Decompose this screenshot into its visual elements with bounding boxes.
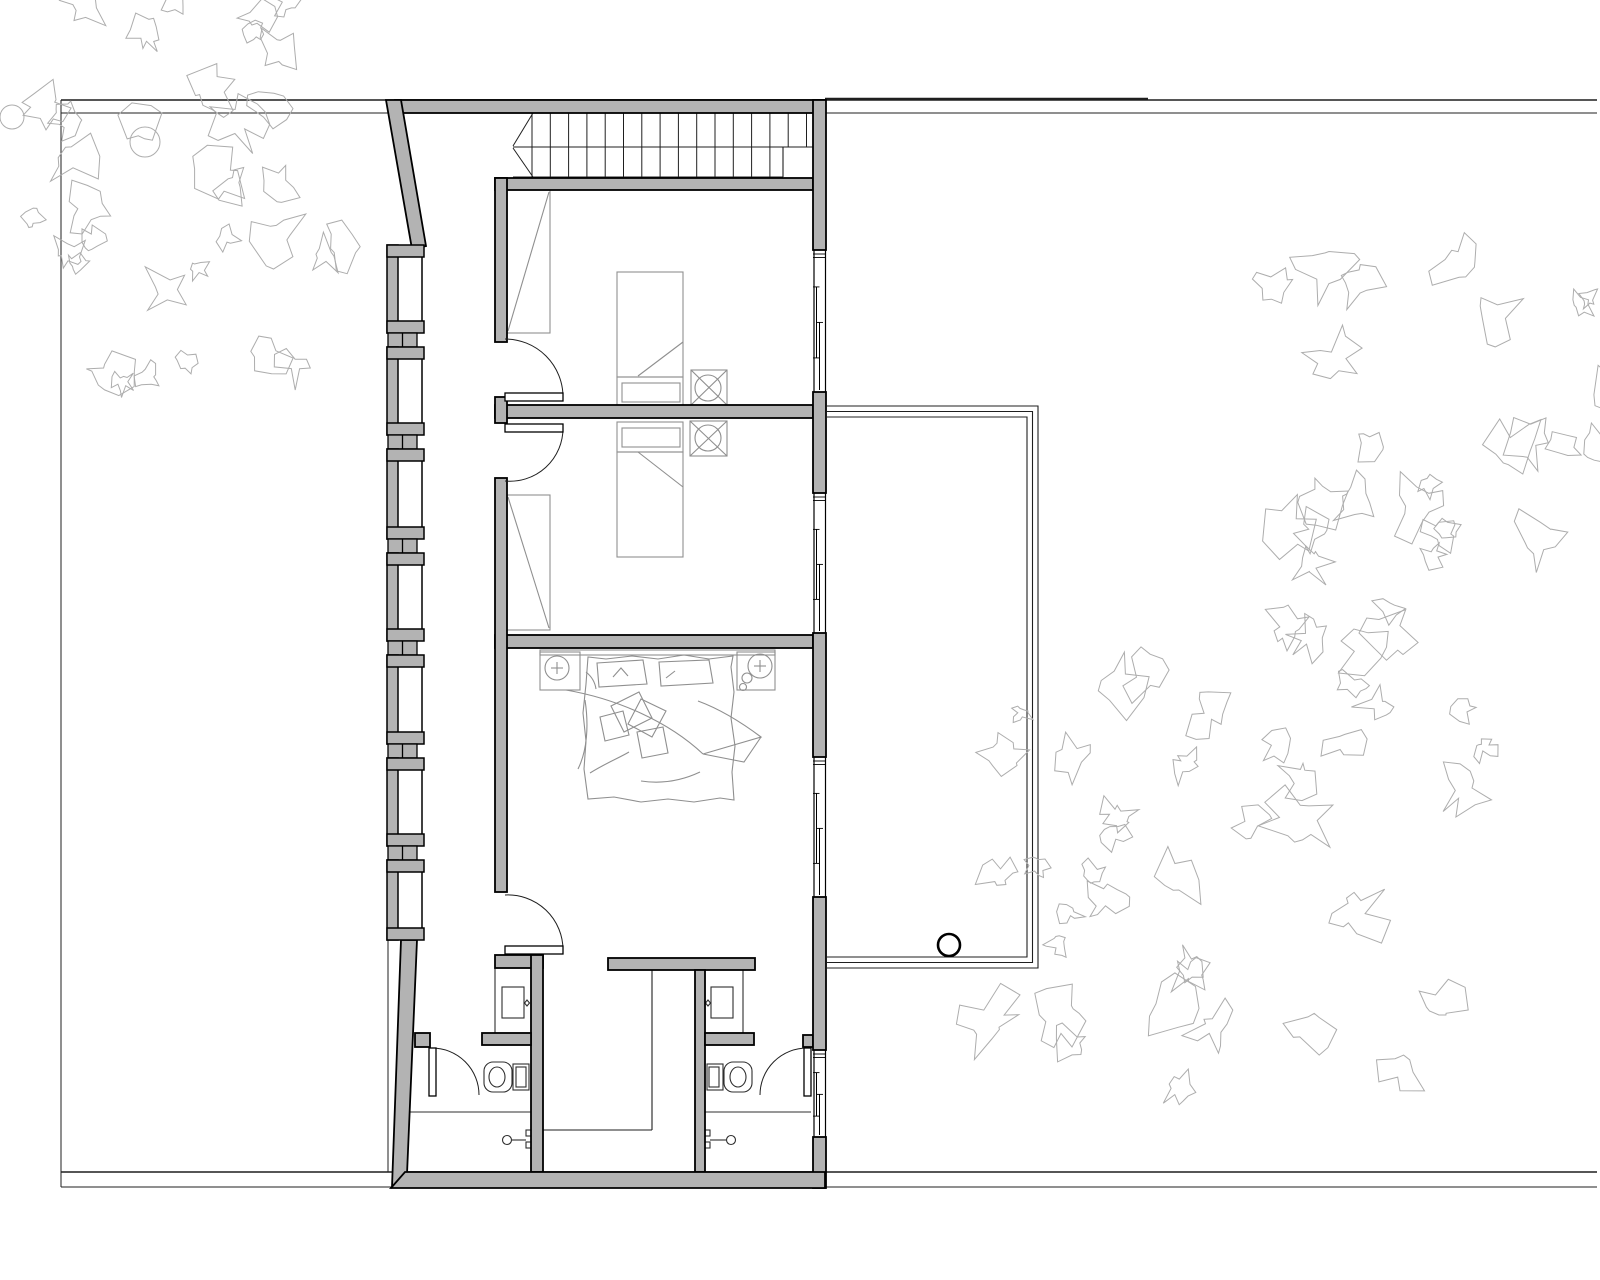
tree-foliage-clump [242,20,263,43]
vanity-left-knob [525,1000,530,1006]
tree-foliage-clump [1338,629,1388,676]
bath-right-left-wall [695,970,705,1172]
tree-foliage-clump [1514,509,1568,573]
master-bed-cushion3 [637,727,668,758]
bed2-blanket-fold [638,452,683,487]
bath-left-right-wall [531,955,543,1172]
pillar-flange-top [387,347,424,359]
tree-foliage-clump [1474,739,1498,764]
master-bed-pillow2-mark [666,671,675,678]
toilet-left-tank [513,1064,529,1090]
master-bed-wrinkle2 [590,752,629,773]
left-facade-pillars [387,245,424,940]
toilet-right-tank-inner [709,1067,719,1087]
tree-foliage-clump [1258,785,1333,847]
divider-bed1-bed2 [495,405,813,418]
tree-foliage-clump [956,983,1020,1059]
pillar-strip [387,347,398,435]
floor-plan-canvas [0,0,1600,1280]
pillar-flange-top [387,553,424,565]
door-master-bedroom [505,895,563,954]
wardrobe2-door [508,497,549,628]
tree-foliage-clump [1082,858,1106,883]
tree-trunk-2 [0,105,24,129]
door-swing-arc [432,1048,479,1095]
vanity-left-sink [502,987,524,1018]
right-wall-c [813,633,826,757]
door-swing-arc [505,428,563,481]
door-bath-right [760,1048,811,1096]
tree-foliage-clump [1302,325,1362,379]
nightstand-right-deco1 [742,673,752,683]
pillar-flange-top [387,449,424,461]
facade-pillar-5 [387,655,424,758]
right-wall-b [813,392,826,493]
staircase [513,113,813,177]
pillar-flange-bottom [387,629,424,641]
shower-left-drain [503,1136,512,1145]
pillar-flange-bottom [387,527,424,539]
tree-foliage-clump [86,351,135,396]
tree-foliage-clump [1372,599,1406,626]
tree-foliage-clump [274,349,310,391]
vanity-left-counter [495,968,531,1033]
tree-foliage-clump [1100,825,1133,853]
divider-bed2-master [495,635,813,648]
window-bedroom1 [813,250,826,392]
window-bedroom2 [813,493,826,633]
master-bed-cushion4 [600,711,629,741]
toilet-left-bowl [484,1062,512,1092]
door-bedroom1 [505,339,563,401]
tree-foliage-clump [1290,252,1360,306]
tree-foliage-clump [1294,507,1330,554]
right-wall-d [813,897,826,1050]
tree-foliage-clump [1057,904,1086,924]
balcony-drain-circle [938,934,960,956]
bed2-foot-inner [622,428,680,447]
tree-foliage-clump [1418,474,1443,499]
tree-foliage-clump [1429,233,1476,286]
door-leaf [505,424,563,432]
pillar-strip [387,245,398,333]
door-bath-left [429,1048,479,1096]
tree-foliage-clump [216,224,241,252]
door-swing-arc [760,1048,807,1095]
pillar-strip [387,655,398,744]
tree-foliage-clump [1252,268,1292,303]
toilet-left-tank-inner [516,1067,526,1087]
slanted-wall-top-left [386,100,426,249]
tree-foliage-clump [1278,763,1317,800]
tree-foliage-clump [260,29,296,70]
pillar-flange-bottom [387,732,424,744]
facade-pillar-4 [387,553,424,655]
walls [386,100,826,1188]
vanity-right-sink [711,987,733,1018]
tree-foliage-clump [1377,1055,1425,1091]
tree-foliage-clump [48,101,82,141]
tree-foliage-clump [1056,1023,1085,1062]
balcony-terrace [827,406,1038,968]
tree-foliage-clump [1329,889,1391,943]
stub-right-hinge [803,1035,813,1047]
tree-foliage-clump [1087,881,1130,917]
top-wall [395,100,825,113]
door-bedroom2 [505,424,563,481]
pillar-flange-top [387,245,424,257]
pillar-flange-top [387,655,424,667]
tree-foliage-clump [1154,847,1201,905]
master-bed-wrinkle4 [586,672,596,689]
facade-pillar-7 [387,860,424,940]
door-leaf [505,393,563,401]
tree-foliage-clump [1321,730,1367,757]
stair-break-line [513,148,533,177]
balcony-rail-2 [827,417,1027,957]
nightstand-left [540,652,580,690]
pillar-strip [387,449,398,539]
bed2-mattress [617,452,683,557]
master-bed-pillow1 [597,660,647,687]
tree-foliage-clump [1123,647,1169,704]
tree-foliage-clump [1012,706,1033,722]
pillar-strip [387,758,398,846]
pillar-flange-bottom [387,928,424,940]
floor-plan-page [0,0,1600,1280]
master-bed-cushion2 [628,699,666,737]
window-master-bedroom [813,757,826,897]
tree-foliage-clump [247,92,293,129]
balcony-rail-0 [827,406,1038,968]
pillar-strip [387,553,398,641]
pillar-flange-bottom [387,321,424,333]
stub-left-mid [482,1033,531,1045]
site-boundary [61,99,1597,1187]
tree-foliage-clump [1395,472,1444,544]
facade-pillar-3 [387,449,424,553]
door-leaf [505,946,563,954]
tree-foliage-clump [1262,728,1291,763]
stub-left-hinge [415,1033,430,1047]
tree-foliage-clump [1480,298,1523,347]
tree-cluster-top-left-a [0,0,306,269]
tree-foliage-clump [263,165,301,202]
tree-foliage-clump [1035,984,1086,1048]
tree-foliage-clump [145,267,186,311]
tree-foliage-clump [60,0,107,26]
tree-foliage-clump [21,208,47,227]
tree-foliage-clump [1182,998,1233,1053]
bed1-foot-inner [622,383,680,402]
tree-trunk-1 [130,127,160,157]
facade-pillar-6 [387,758,424,860]
tree-foliage-clump [1594,365,1600,410]
tree-foliage-clump [275,0,303,17]
tree-foliage-clump [208,94,270,154]
tree-foliage-clump [975,857,1018,885]
master-bed-duvet-fold2 [698,701,761,754]
tree-foliage-clump [1298,478,1348,530]
tree-foliage-clump [1055,732,1091,785]
tree-foliage-clump [1584,423,1600,462]
tree-foliage-clump [1545,432,1581,456]
tree-foliage-clump [118,103,162,140]
door-swing-arc [505,339,563,397]
tree-foliage-clump [1450,699,1477,725]
pillar-flange-top [387,758,424,770]
tree-foliage-clump [187,64,235,118]
tree-foliage-clump [1358,433,1383,463]
master-bed-pillow2 [659,660,713,686]
tree-foliage-clump [134,360,159,387]
tree-foliage-clump [1351,685,1394,720]
vanity-right-knob [706,1000,711,1006]
window-bath-right [813,1050,826,1137]
shower-right-drain [727,1136,736,1145]
hall-top-bar [608,958,755,970]
tree-foliage-clump [126,13,159,52]
tree-foliage-clump [51,133,100,181]
tree-foliage-clump [1265,605,1309,651]
tree-foliage-clump [1186,692,1231,740]
hall-lines [543,970,652,1130]
tree-foliage-clump [1443,762,1491,817]
tree-foliage-clump [69,180,110,234]
tree-foliage-clump [193,145,245,199]
tree-foliage-clump [976,733,1030,777]
pillar-flange-bottom [387,834,424,846]
door-leaf [804,1048,811,1096]
tree-foliage-clump [1148,973,1199,1036]
tree-foliage-clump [1163,1069,1196,1105]
toilet-right-seat [730,1067,746,1087]
master-bed-pillow1-mark [613,668,628,677]
tree-cluster-top-left-b [54,220,360,397]
corridor-wall-c [495,478,507,892]
tree-foliage-clump [1333,470,1373,520]
facade-pillar-2 [387,347,424,449]
slanted-wall-bottom-left [392,940,417,1187]
tree-foliage-clump [237,0,278,32]
tree-foliage-clump [1173,747,1198,786]
wardrobe1-door [508,192,549,331]
bedroom1-top-wall [495,178,813,190]
facade-pillar-1 [387,245,424,347]
bed1-mattress [617,272,683,377]
pillar-flange-bottom [387,423,424,435]
tree-foliage-clump [1359,610,1418,661]
vegetation [0,0,1600,1105]
tree-foliage-clump [213,168,244,207]
tree-foliage-clump [1292,546,1335,585]
master-bed-duvet-fold3 [703,737,761,762]
toilet-left-seat [489,1067,505,1087]
stub-right-mid [705,1033,754,1045]
pillar-flange-top [387,860,424,872]
corridor-wall-a [495,178,507,342]
door-swing-arc [505,895,563,950]
tree-foliage-clump [161,0,183,14]
stair-break-line [513,113,533,146]
tree-foliage-clump [249,214,305,269]
tree-cluster-right-upper [1252,233,1600,676]
tree-foliage-clump [1420,543,1447,570]
tree-foliage-clump [1100,796,1139,833]
master-bed-wrinkle3 [641,772,700,782]
tree-foliage-clump [1043,936,1066,958]
bed1-blanket-fold [638,342,683,376]
tree-foliage-clump [22,79,71,129]
tree-foliage-clump [1419,979,1468,1015]
tree-foliage-clump [175,350,198,374]
tree-foliage-clump [191,262,210,281]
door-leaf [429,1048,436,1096]
right-wall-a [813,100,826,250]
tree-foliage-clump [327,220,361,274]
tree-foliage-clump [1283,1013,1337,1055]
bottom-wall [391,1172,825,1188]
balcony-rail-1 [827,412,1033,963]
tree-foliage-clump [1231,805,1272,839]
furniture [507,190,775,802]
